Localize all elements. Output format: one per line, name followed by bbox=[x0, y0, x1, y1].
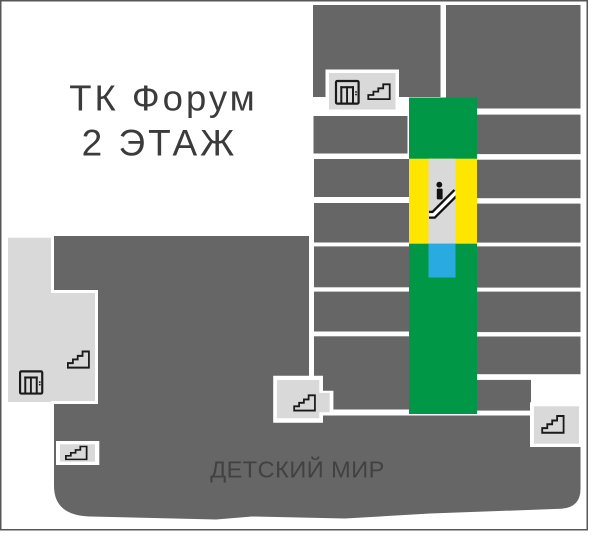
svg-text:ТК Форум: ТК Форум bbox=[69, 78, 258, 119]
svg-text:ДЕТСКИЙ МИР: ДЕТСКИЙ МИР bbox=[210, 456, 385, 483]
svg-text:2 ЭТАЖ: 2 ЭТАЖ bbox=[82, 123, 238, 164]
